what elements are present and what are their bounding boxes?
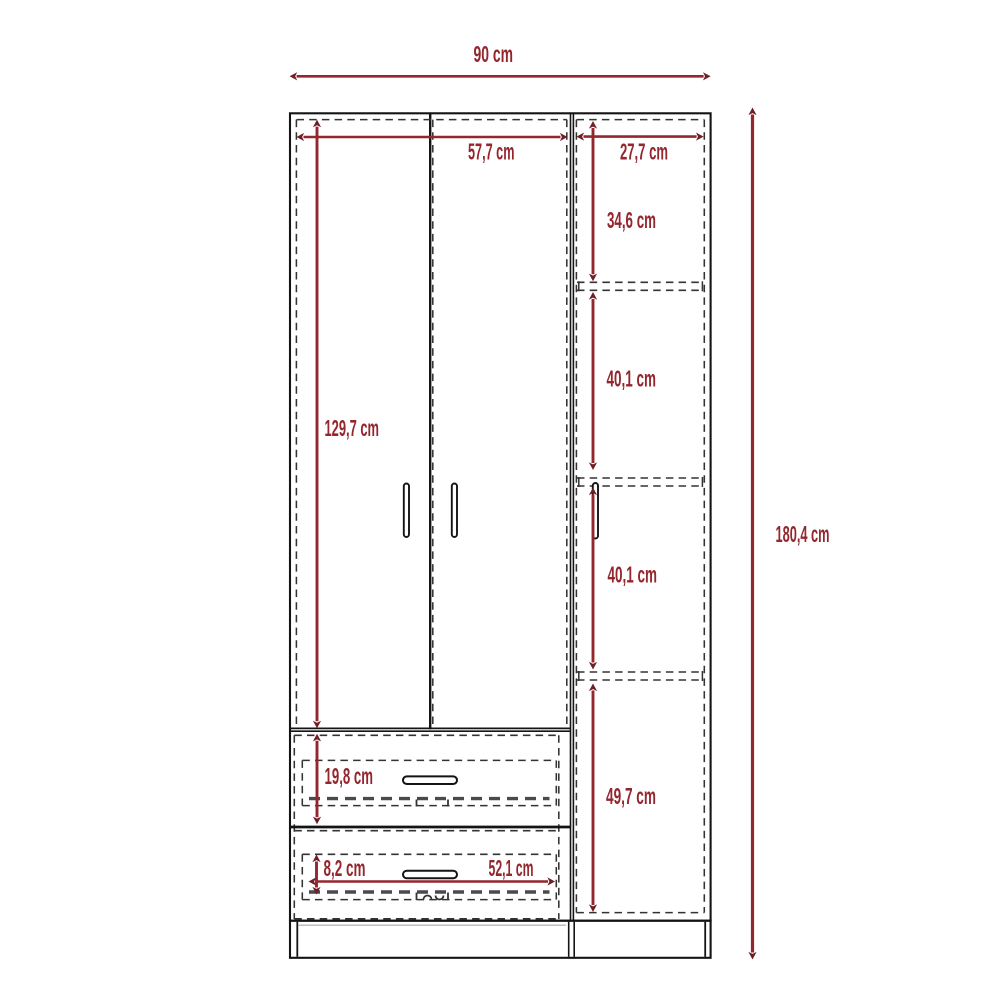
svg-text:19,8 cm: 19,8 cm — [325, 763, 374, 789]
svg-text:34,6 cm: 34,6 cm — [607, 207, 656, 233]
svg-text:180,4 cm: 180,4 cm — [776, 521, 830, 547]
svg-text:40,1 cm: 40,1 cm — [607, 366, 657, 392]
svg-text:8,2 cm: 8,2 cm — [324, 855, 366, 881]
svg-text:129,7 cm: 129,7 cm — [325, 415, 380, 441]
svg-text:40,1 cm: 40,1 cm — [608, 562, 658, 588]
svg-text:57,7 cm: 57,7 cm — [468, 139, 515, 165]
svg-text:49,7 cm: 49,7 cm — [606, 783, 656, 809]
svg-text:90 cm: 90 cm — [474, 41, 514, 67]
svg-text:27,7 cm: 27,7 cm — [620, 139, 668, 165]
svg-text:52,1 cm: 52,1 cm — [489, 855, 534, 881]
